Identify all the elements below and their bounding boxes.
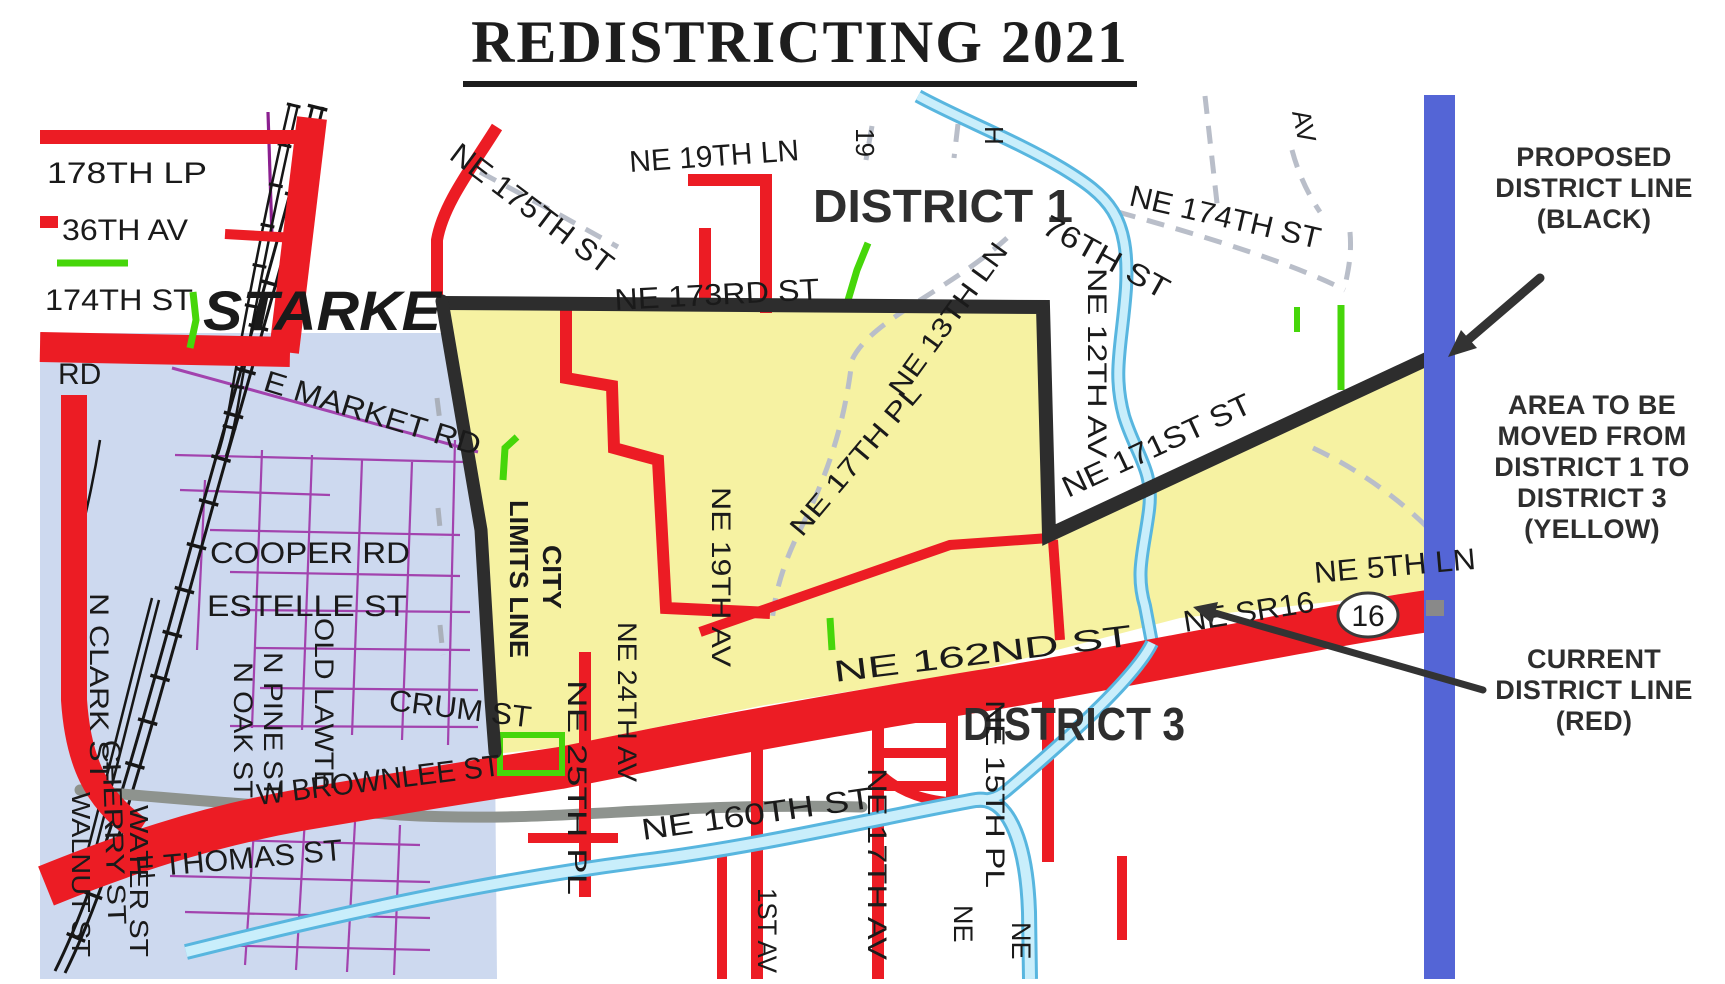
street-label-ne-17th-av: NE 17TH AV (862, 768, 892, 960)
annotation-line: MOVED FROM (1448, 421, 1725, 452)
redistricting-map-page: REDISTRICTING 2021 (0, 0, 1725, 979)
street-label-178th-lp: 178TH LP (47, 157, 207, 190)
annotation-line: PROPOSED (1458, 142, 1725, 173)
red-road (1053, 540, 1060, 640)
city-label-starke: STARKE (203, 279, 443, 342)
street-label-frag-19: 19 (850, 128, 880, 157)
annotation-line: (YELLOW) (1448, 514, 1725, 545)
street-label-frag-h: H (979, 126, 1009, 145)
street-label-174th-st: 174TH ST (45, 284, 193, 317)
street-label-cooper-rd: COOPER RD (210, 537, 410, 570)
district-1-label: DISTRICT 1 (813, 180, 1073, 232)
street-label-ne-frag-a: NE (948, 905, 978, 943)
current-district-line-annotation: CURRENT DISTRICT LINE (RED) (1458, 644, 1725, 737)
annotation-line: DISTRICT 3 (1448, 483, 1725, 514)
street-label-ne-19th-av: NE 19TH AV (706, 487, 736, 667)
street-label-n-oak-st: N OAK ST (228, 662, 258, 798)
annotation-line: CURRENT (1458, 644, 1725, 675)
gray-road-stub (1426, 600, 1444, 616)
street-label-estelle-st: ESTELLE ST (207, 590, 407, 623)
annotation-line: DISTRICT 1 TO (1448, 452, 1725, 483)
page-title: REDISTRICTING 2021 (390, 8, 1210, 87)
street-label-rd: RD (58, 358, 101, 391)
street-label-ne-frag-b: NE (1006, 922, 1036, 960)
city-limits-label-line1: CITY (537, 545, 567, 609)
street-label-old-lawtey: OLD LAWTE (309, 618, 339, 790)
red-road (225, 234, 296, 238)
page-title-text: REDISTRICTING 2021 (463, 8, 1137, 87)
street-label-ne-25th-pl: NE 25TH PL (562, 680, 592, 895)
street-label-n-pine-st: N PINE ST (258, 652, 288, 798)
route-16-shield-number: 16 (1351, 600, 1384, 633)
street-label-ne-12th-av: NE 12TH AV (1082, 268, 1112, 458)
annotation-line: (BLACK) (1458, 204, 1725, 235)
proposed-district-line-annotation: PROPOSED DISTRICT LINE (BLACK) (1458, 142, 1725, 235)
street-label-36th-av: 36TH AV (62, 214, 188, 247)
annotation-line: AREA TO BE (1448, 390, 1725, 421)
city-limits-label-line2: LIMITS LINE (504, 500, 534, 658)
street-label-water-st: WATER ST (124, 805, 154, 957)
annotation-line: (RED) (1458, 706, 1725, 737)
green-road (830, 618, 832, 650)
area-moved-annotation: AREA TO BE MOVED FROM DISTRICT 1 TO DIST… (1448, 390, 1725, 545)
red-road (40, 347, 290, 352)
street-label-ne-15th-pl: NE 15TH PL (980, 700, 1010, 888)
annotation-line: DISTRICT LINE (1458, 675, 1725, 706)
street-label-walnut-st: WALNUT ST (66, 792, 96, 957)
street-label-ne-24th-av: NE 24TH AV (612, 622, 642, 782)
street-label-ne-21st-av: 1ST AV (752, 888, 782, 973)
annotation-line: DISTRICT LINE (1458, 173, 1725, 204)
